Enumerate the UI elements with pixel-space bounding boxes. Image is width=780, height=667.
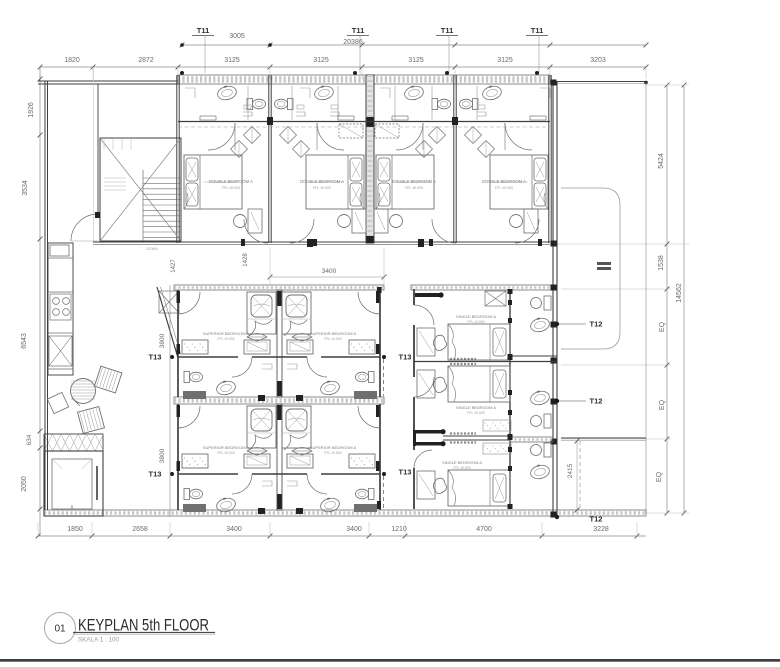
svg-text:FFL ±0.000: FFL ±0.000	[467, 411, 484, 415]
svg-text:FFL ±0.000: FFL ±0.000	[313, 186, 331, 190]
svg-text:SINGLE BEDROOM A: SINGLE BEDROOM A	[442, 460, 482, 465]
svg-text:3125: 3125	[224, 57, 240, 64]
svg-text:2872: 2872	[138, 57, 154, 64]
svg-text:1427: 1427	[171, 259, 177, 273]
svg-text:EQ: EQ	[656, 471, 663, 482]
svg-text:DOUBLE BEDROOM A: DOUBLE BEDROOM A	[482, 179, 526, 184]
svg-text:2050: 2050	[21, 476, 28, 492]
svg-text:SUPERIOR BEDROOM A: SUPERIOR BEDROOM A	[203, 331, 250, 336]
svg-text:3400: 3400	[322, 268, 337, 275]
svg-text:1820: 1820	[64, 57, 80, 64]
svg-text:14562: 14562	[676, 283, 683, 303]
svg-text:2415: 2415	[567, 463, 574, 478]
svg-text:T12: T12	[590, 397, 603, 406]
svg-text:4700: 4700	[476, 526, 492, 533]
svg-text:T11: T11	[441, 26, 454, 35]
svg-text:FFL ±0.000: FFL ±0.000	[217, 337, 234, 341]
svg-text:SINGLE BEDROOM A: SINGLE BEDROOM A	[456, 314, 496, 319]
svg-text:1850: 1850	[67, 526, 83, 533]
svg-text:3125: 3125	[497, 57, 513, 64]
svg-text:DOUBLE BEDROOM A: DOUBLE BEDROOM A	[300, 179, 344, 184]
svg-text:01: 01	[54, 624, 66, 635]
svg-text:T11: T11	[352, 26, 365, 35]
svg-text:FFL ±0.000: FFL ±0.000	[222, 186, 240, 190]
svg-text:T12: T12	[590, 320, 603, 329]
svg-text:5424: 5424	[658, 153, 665, 169]
svg-text:SUPERIOR BEDROOM A: SUPERIOR BEDROOM A	[310, 331, 357, 336]
svg-text:6543: 6543	[21, 333, 28, 349]
svg-text:EQ: EQ	[659, 321, 666, 332]
svg-text:FFL ±0.000: FFL ±0.000	[217, 451, 234, 455]
svg-text:DOWN: DOWN	[146, 247, 158, 251]
svg-text:SKALA 1 : 100: SKALA 1 : 100	[78, 637, 120, 644]
svg-text:DOUBLE BEDROOM A: DOUBLE BEDROOM A	[209, 179, 253, 184]
svg-text:FFL ±0.000: FFL ±0.000	[405, 186, 423, 190]
svg-text:3534: 3534	[22, 180, 29, 196]
svg-text:3800: 3800	[159, 448, 166, 463]
svg-text:1926: 1926	[28, 102, 35, 118]
svg-text:SINGLE BEDROOM A: SINGLE BEDROOM A	[456, 405, 496, 410]
svg-text:T13: T13	[399, 468, 412, 477]
svg-text:EQ: EQ	[659, 399, 666, 410]
svg-text:FFL ±0.000: FFL ±0.000	[324, 451, 341, 455]
svg-text:2658: 2658	[132, 526, 148, 533]
svg-text:FFL ±0.000: FFL ±0.000	[467, 320, 484, 324]
svg-text:634: 634	[26, 434, 33, 445]
svg-text:T13: T13	[149, 470, 162, 479]
svg-text:FFL ±0.000: FFL ±0.000	[324, 337, 341, 341]
svg-text:3400: 3400	[226, 526, 242, 533]
svg-text:3400: 3400	[346, 526, 362, 533]
svg-text:3005: 3005	[229, 33, 245, 40]
svg-text:T13: T13	[399, 353, 412, 362]
svg-text:FFL ±0.000: FFL ±0.000	[495, 186, 513, 190]
svg-text:T11: T11	[531, 26, 544, 35]
svg-text:T12: T12	[590, 515, 603, 524]
svg-text:3228: 3228	[593, 526, 609, 533]
svg-text:1210: 1210	[391, 526, 407, 533]
svg-text:1538: 1538	[658, 255, 665, 271]
svg-text:KEYPLAN 5th FLOOR: KEYPLAN 5th FLOOR	[78, 616, 209, 635]
svg-text:3125: 3125	[408, 57, 424, 64]
svg-text:3203: 3203	[590, 57, 606, 64]
svg-text:FFL ±0.000: FFL ±0.000	[453, 466, 470, 470]
svg-text:SUPERIOR BEDROOM A: SUPERIOR BEDROOM A	[310, 445, 357, 450]
svg-text:T13: T13	[149, 353, 162, 362]
svg-text:SUPERIOR BEDROOM A: SUPERIOR BEDROOM A	[203, 445, 250, 450]
svg-text:3125: 3125	[313, 57, 329, 64]
svg-text:1428: 1428	[243, 253, 249, 267]
svg-text:DOUBLE BEDROOM A: DOUBLE BEDROOM A	[392, 179, 436, 184]
svg-text:T11: T11	[197, 26, 210, 35]
svg-text:3800: 3800	[159, 333, 166, 348]
